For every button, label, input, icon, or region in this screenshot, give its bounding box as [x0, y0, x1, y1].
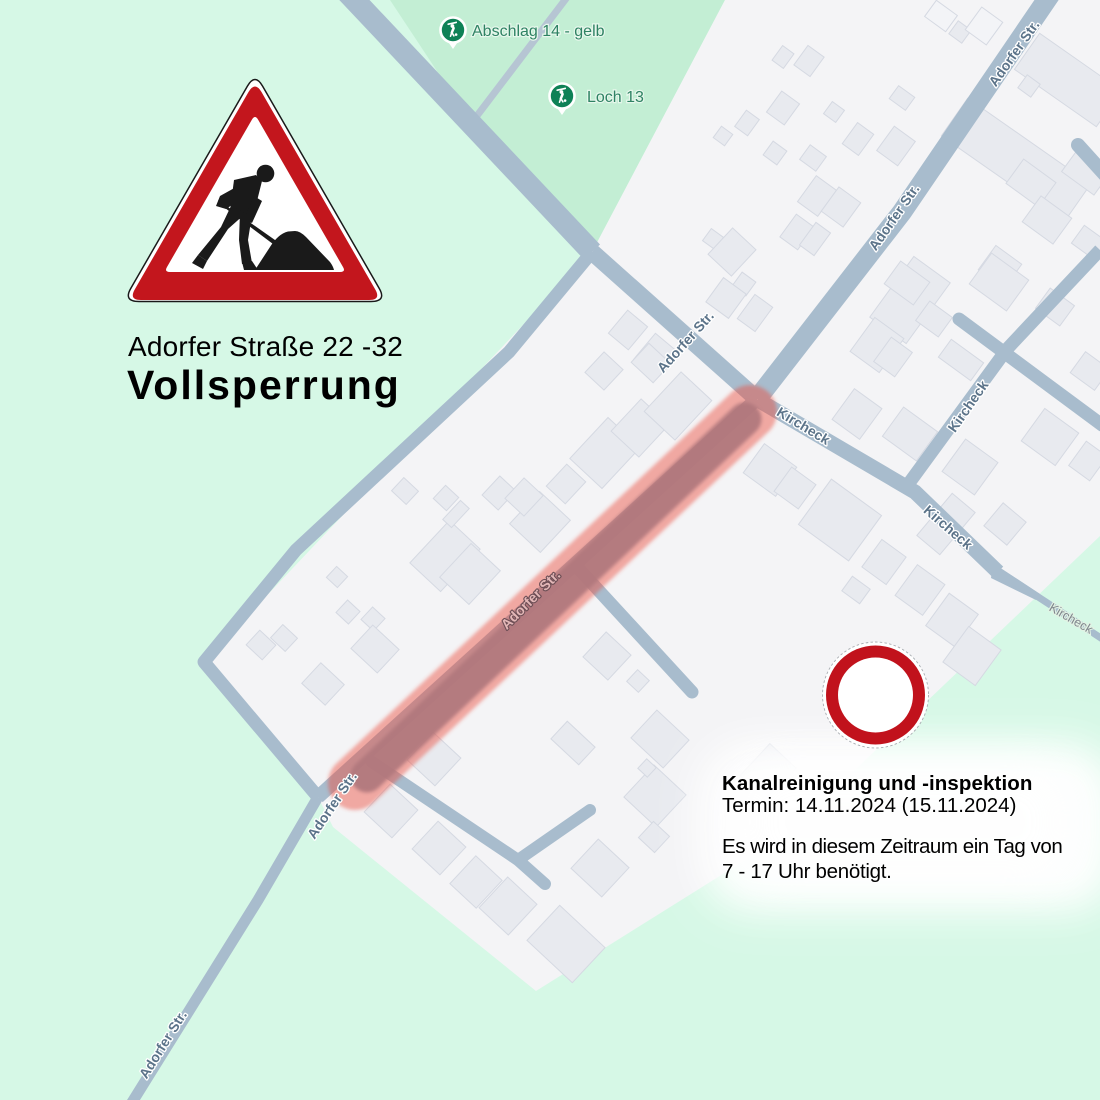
- svg-text:Loch 13: Loch 13: [587, 89, 644, 106]
- svg-text:Es wird in diesem Zeitraum ein: Es wird in diesem Zeitraum ein Tag von: [722, 835, 1062, 858]
- svg-text:Vollsperrung: Vollsperrung: [127, 362, 401, 408]
- svg-text:Termin: 14.11.2024 (15.11.2024: Termin: 14.11.2024 (15.11.2024): [722, 794, 1016, 817]
- svg-text:Kanalreinigung und -inspektion: Kanalreinigung und -inspektion: [722, 772, 1033, 795]
- svg-text:7 - 17 Uhr benötigt.: 7 - 17 Uhr benötigt.: [722, 860, 892, 883]
- svg-text:Adorfer Straße 22 -32: Adorfer Straße 22 -32: [128, 331, 403, 362]
- svg-text:Abschlag 14 - gelb: Abschlag 14 - gelb: [472, 23, 605, 40]
